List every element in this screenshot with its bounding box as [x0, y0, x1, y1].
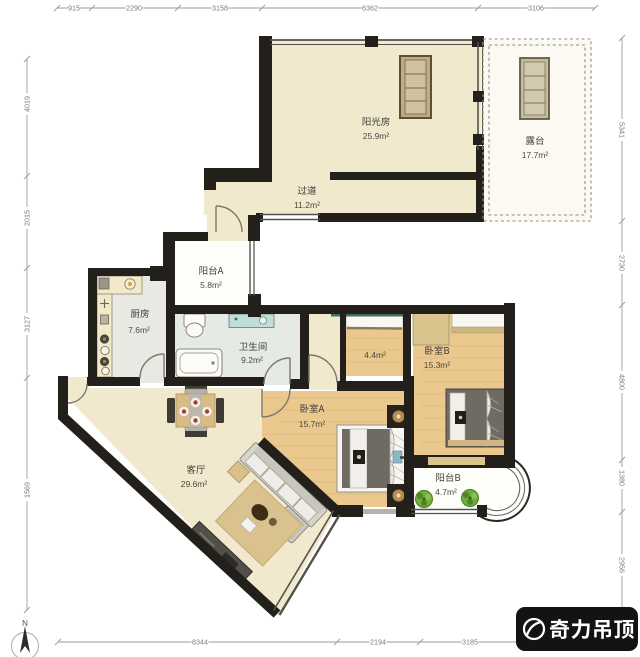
svg-text:6362: 6362 [362, 4, 378, 13]
svg-text:2194: 2194 [370, 638, 386, 647]
svg-text:25.9m²: 25.9m² [363, 131, 390, 141]
svg-text:15.3m²: 15.3m² [424, 360, 451, 370]
svg-text:4.4m²: 4.4m² [364, 350, 386, 360]
svg-text:5.8m²: 5.8m² [200, 280, 222, 290]
svg-text:1380: 1380 [618, 470, 627, 486]
svg-text:2290: 2290 [126, 4, 142, 13]
svg-text:11.2m²: 11.2m² [294, 200, 320, 210]
svg-text:15.7m²: 15.7m² [299, 419, 326, 429]
svg-text:915: 915 [68, 4, 80, 13]
svg-text:3127: 3127 [23, 316, 32, 332]
svg-text:4.7m²: 4.7m² [435, 487, 457, 497]
svg-text:2015: 2015 [23, 210, 32, 226]
svg-text:1569: 1569 [23, 482, 32, 498]
svg-text:8344: 8344 [192, 638, 208, 647]
svg-text:3185: 3185 [462, 638, 478, 647]
svg-text:3106: 3106 [528, 4, 544, 13]
svg-text:N: N [22, 619, 28, 628]
svg-text:2730: 2730 [618, 255, 627, 271]
svg-text:9.2m²: 9.2m² [241, 355, 263, 365]
svg-text:7.6m²: 7.6m² [128, 325, 150, 335]
svg-text:29.6m²: 29.6m² [181, 479, 208, 489]
svg-text:5341: 5341 [618, 122, 627, 138]
svg-text:17.7m²: 17.7m² [522, 150, 549, 160]
svg-text:4800: 4800 [618, 374, 627, 390]
svg-text:3158: 3158 [212, 4, 228, 13]
svg-text:4019: 4019 [23, 96, 32, 112]
svg-text:2956: 2956 [618, 557, 627, 573]
